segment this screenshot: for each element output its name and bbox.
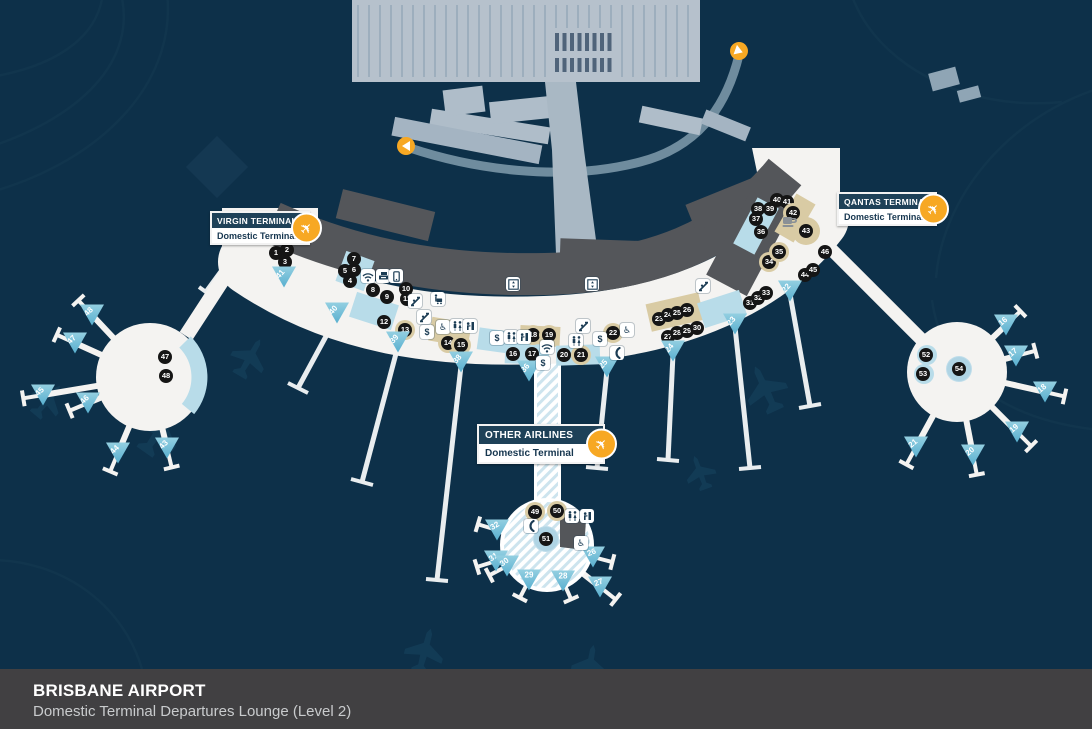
airplane-icon: ✈ — [586, 429, 617, 460]
airport-map: 1234567891011121314151617181920212223242… — [0, 0, 1092, 729]
poi-marker-36[interactable]: 36 — [754, 225, 768, 239]
phone-icon[interactable] — [524, 519, 538, 533]
poi-marker-33[interactable]: 33 — [759, 286, 773, 300]
fountain-icon[interactable] — [463, 319, 477, 333]
gate-29[interactable]: 29 — [517, 570, 541, 591]
poi-marker-16[interactable]: 16 — [506, 347, 520, 361]
terminal-label-sub: Domestic Terminal — [479, 444, 603, 462]
gate-44[interactable]: 44 — [106, 443, 130, 464]
wheelchair-icon[interactable]: ♿ — [436, 320, 450, 334]
airplane-icon: ✈ — [291, 213, 322, 244]
poi-marker-48[interactable]: 48 — [159, 369, 173, 383]
footer-bar: BRISBANE AIRPORT Domestic Terminal Depar… — [0, 669, 1092, 729]
restrooms-icon[interactable] — [450, 319, 464, 333]
restrooms-icon[interactable] — [504, 330, 518, 344]
gate-43[interactable]: 43 — [155, 438, 179, 459]
poi-marker-30[interactable]: 30 — [690, 321, 704, 335]
gate-23[interactable]: 23 — [723, 314, 747, 335]
poi-marker-20[interactable]: 20 — [557, 348, 571, 362]
page-subtitle: Domestic Terminal Departures Lounge (Lev… — [33, 703, 1092, 720]
gate-32[interactable]: 32 — [485, 520, 509, 541]
restrooms-icon[interactable] — [569, 334, 583, 348]
wifi-icon[interactable] — [361, 269, 375, 283]
gate-22[interactable]: 22 — [778, 281, 802, 302]
wheelchair-icon[interactable]: ♿ — [574, 536, 588, 550]
poi-marker-8[interactable]: 8 — [366, 283, 380, 297]
poi-marker-45[interactable]: 45 — [806, 263, 820, 277]
gate-38[interactable]: 38 — [449, 352, 473, 373]
gate-48[interactable]: 48 — [80, 305, 104, 326]
gate-16[interactable]: 16 — [994, 315, 1018, 336]
dollar-icon[interactable]: $ — [420, 325, 434, 339]
poi-marker-54[interactable]: 54 — [952, 362, 966, 376]
poi-marker-22[interactable]: 22 — [606, 326, 620, 340]
gate-46[interactable]: 46 — [76, 393, 100, 414]
marker-layer: 1234567891011121314151617181920212223242… — [0, 0, 1092, 669]
gate-18[interactable]: 18 — [1033, 382, 1057, 403]
road-direction-marker — [727, 39, 750, 62]
gate-28[interactable]: 28 — [551, 571, 575, 592]
poi-marker-7[interactable]: 7 — [347, 252, 361, 266]
gate-47[interactable]: 47 — [63, 333, 87, 354]
restrooms-icon[interactable] — [565, 509, 579, 523]
fountain-icon[interactable] — [517, 330, 531, 344]
gate-39[interactable]: 39 — [386, 332, 410, 353]
lift-icon[interactable] — [585, 277, 599, 291]
copier-icon[interactable] — [376, 269, 390, 283]
poi-marker-15[interactable]: 15 — [454, 338, 468, 352]
poi-marker-9[interactable]: 9 — [380, 290, 394, 304]
airplane-icon: ✈ — [918, 194, 949, 225]
escalator-icon[interactable] — [417, 310, 431, 324]
trolley-icon[interactable] — [431, 292, 445, 306]
gate-17[interactable]: 17 — [1004, 346, 1028, 367]
cafe-icon[interactable] — [781, 214, 799, 230]
gate-21[interactable]: 21 — [904, 437, 928, 458]
page-title: BRISBANE AIRPORT — [33, 681, 1092, 701]
gate-19[interactable]: 19 — [1005, 422, 1029, 443]
terminal-label-virgin: VIRGIN TERMINALDomestic Terminal✈ — [210, 211, 310, 245]
terminal-label-other: OTHER AIRLINESDomestic Terminal✈ — [477, 424, 605, 464]
poi-marker-51[interactable]: 51 — [539, 532, 553, 546]
poi-marker-14[interactable]: 14 — [441, 336, 455, 350]
poi-marker-43[interactable]: 43 — [799, 224, 813, 238]
poi-marker-46[interactable]: 46 — [818, 245, 832, 259]
terminal-label-qantas: QANTAS TERMINALDomestic Terminal✈ — [837, 192, 937, 226]
mobile-icon[interactable] — [389, 269, 403, 283]
gate-20[interactable]: 20 — [961, 445, 985, 466]
escalator-icon[interactable] — [696, 279, 710, 293]
gate-27[interactable]: 27 — [588, 577, 612, 598]
gate-41[interactable]: 41 — [272, 267, 296, 288]
lift-icon[interactable] — [506, 277, 520, 291]
poi-marker-50[interactable]: 50 — [550, 504, 564, 518]
road-direction-marker — [397, 137, 415, 155]
phone-icon[interactable] — [610, 346, 624, 360]
fountain-icon[interactable] — [580, 509, 594, 523]
dollar-icon[interactable]: $ — [536, 356, 550, 370]
poi-marker-53[interactable]: 53 — [916, 367, 930, 381]
dollar-icon[interactable]: $ — [490, 331, 504, 345]
gate-24[interactable]: 24 — [661, 341, 685, 362]
gate-45[interactable]: 45 — [31, 385, 55, 406]
poi-marker-47[interactable]: 47 — [158, 350, 172, 364]
escalator-icon[interactable] — [576, 319, 590, 333]
poi-marker-26[interactable]: 26 — [680, 303, 694, 317]
wheelchair-icon[interactable]: ♿ — [620, 323, 634, 337]
gate-40[interactable]: 40 — [325, 303, 349, 324]
poi-marker-52[interactable]: 52 — [919, 348, 933, 362]
wifi-icon[interactable] — [540, 340, 554, 354]
poi-marker-49[interactable]: 49 — [528, 505, 542, 519]
dollar-icon[interactable]: $ — [593, 332, 607, 346]
poi-marker-21[interactable]: 21 — [574, 348, 588, 362]
poi-marker-35[interactable]: 35 — [772, 245, 786, 259]
escalator-icon[interactable] — [408, 294, 422, 308]
poi-marker-12[interactable]: 12 — [377, 315, 391, 329]
terminal-label-name: OTHER AIRLINES — [479, 426, 603, 444]
